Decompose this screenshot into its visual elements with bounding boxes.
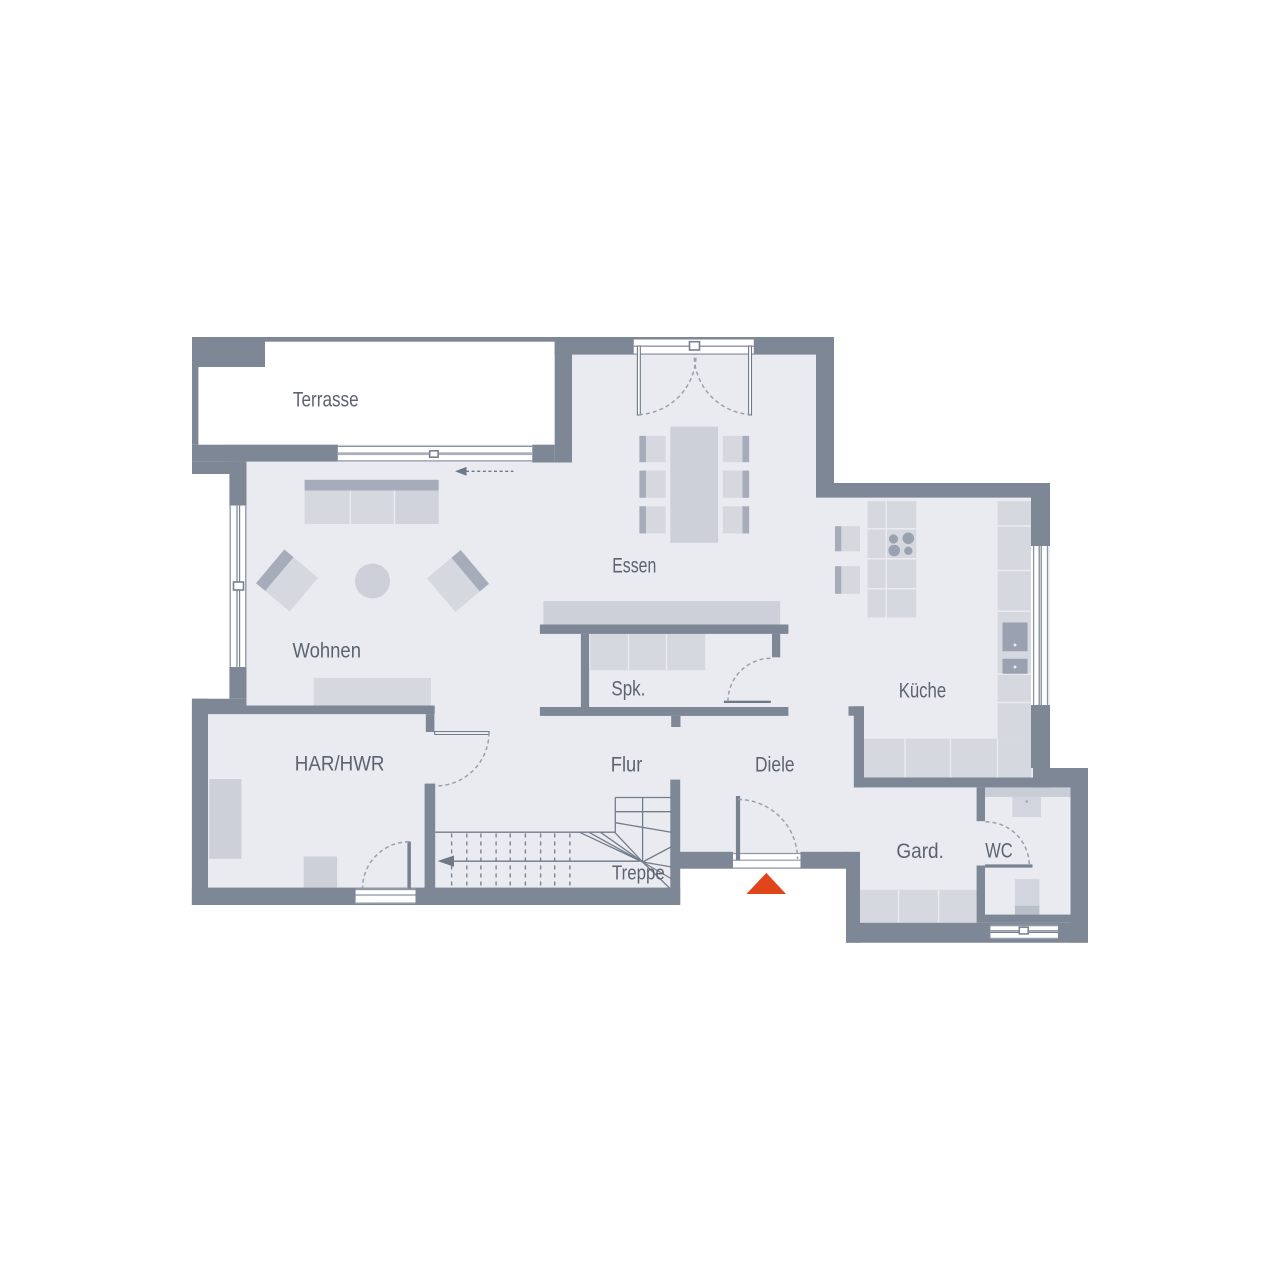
- svg-text:Gard.: Gard.: [896, 839, 944, 863]
- svg-text:Treppe: Treppe: [612, 861, 665, 884]
- svg-text:WC: WC: [985, 839, 1013, 863]
- svg-text:Terrasse: Terrasse: [293, 387, 359, 411]
- svg-text:HAR/HWR: HAR/HWR: [295, 752, 385, 776]
- svg-text:Essen: Essen: [612, 554, 656, 578]
- svg-text:Spk.: Spk.: [611, 676, 645, 700]
- svg-text:Wohnen: Wohnen: [293, 639, 362, 663]
- svg-text:Küche: Küche: [899, 678, 947, 702]
- svg-text:Diele: Diele: [755, 752, 795, 776]
- svg-text:Flur: Flur: [611, 752, 643, 776]
